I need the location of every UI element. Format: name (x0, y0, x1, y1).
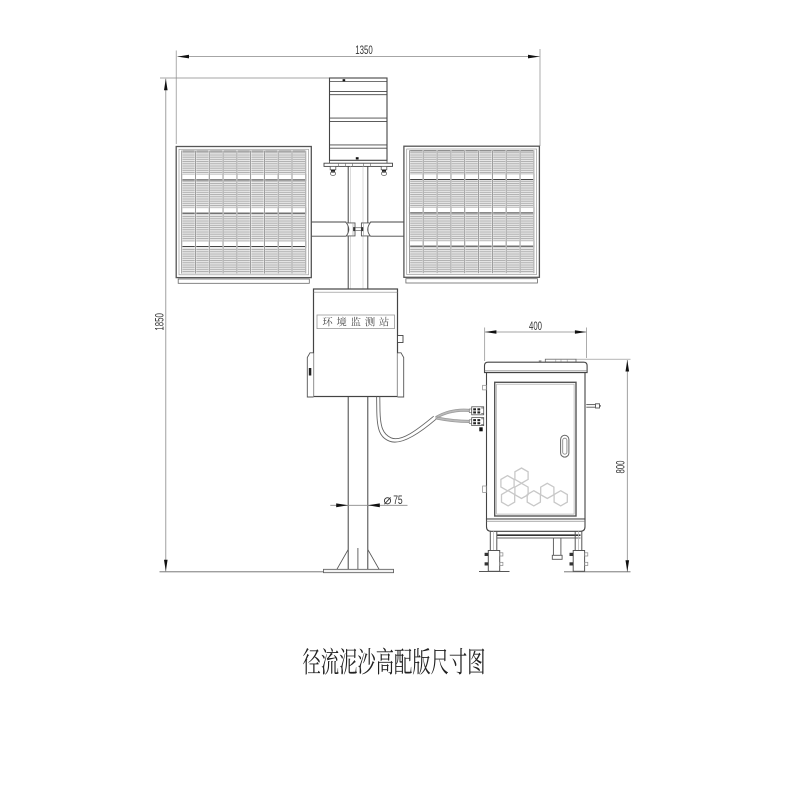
svg-text:1350: 1350 (355, 43, 373, 57)
svg-text:400: 400 (529, 319, 542, 333)
svg-text:75: 75 (393, 493, 403, 507)
svg-text:1850: 1850 (152, 313, 166, 331)
svg-text:800: 800 (614, 460, 628, 473)
